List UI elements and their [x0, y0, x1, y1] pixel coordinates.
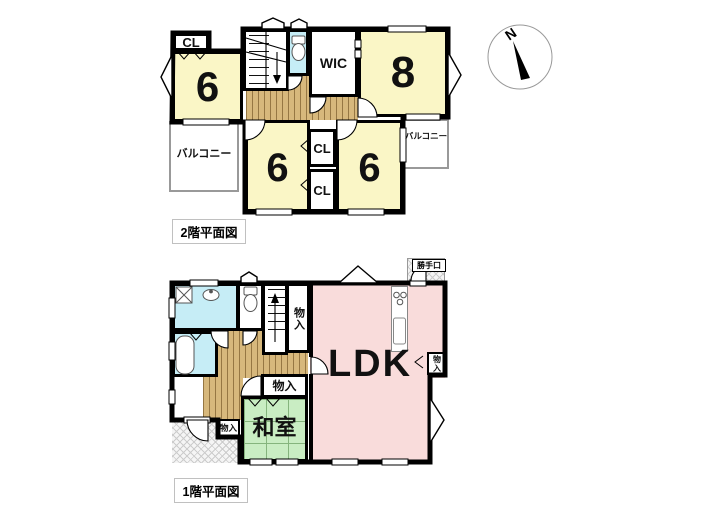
toilet-1f: [237, 283, 264, 331]
storage-ldk-label: 物入: [427, 354, 446, 374]
compass-north-label: N: [502, 24, 519, 43]
bay-window-room8-east: [448, 52, 461, 98]
washroom: [172, 283, 239, 331]
stair-treads-1f: [268, 289, 288, 337]
bay-window-room6-west: [161, 55, 172, 99]
balcony-right-floor: [403, 120, 448, 168]
bathroom: [172, 331, 218, 377]
room6-nw-label: 6: [172, 55, 243, 119]
storage-stair-label: 物入: [286, 290, 310, 348]
entry-hall-wood-floor: [203, 376, 243, 420]
washitsu-label: 和室: [241, 408, 308, 448]
floor2-title: 2階平面図: [172, 219, 246, 244]
bay-window-ldk-north: [339, 266, 378, 283]
compass-circle: [488, 25, 552, 89]
room6-s-center-label: 6: [245, 126, 310, 210]
room6-se-label: 6: [336, 126, 403, 210]
compass: N: [488, 24, 552, 89]
cl-mid-label: CL: [308, 131, 336, 165]
stairs-1f: [262, 283, 288, 355]
toilet-2f: [287, 29, 309, 76]
balcony-right-label: バルコニー: [404, 131, 448, 142]
compass-needle-icon: [513, 41, 530, 80]
storage-hall-label: 物入: [261, 376, 308, 396]
balcony-left-label: バルコニー: [171, 147, 237, 161]
cl-top-label: CL: [173, 34, 209, 50]
wic-label: WIC: [309, 29, 358, 97]
storage-entry-label: 物入: [217, 420, 240, 437]
cl-bottom-label: CL: [308, 171, 336, 209]
floor-plan-canvas: N 6 CL WIC 8 バルコニー 6 CL CL 6 バルコニー 2階平面図…: [0, 0, 705, 525]
ldk-label: LDK: [318, 343, 422, 385]
bay-window-ldk-east: [430, 398, 444, 443]
stair-treads-2f: [249, 35, 269, 91]
stairs-2f: [243, 29, 289, 91]
room8-label: 8: [358, 32, 448, 114]
katteguchi-label: 勝手口: [412, 259, 446, 272]
floor1-title: 1階平面図: [174, 478, 248, 503]
